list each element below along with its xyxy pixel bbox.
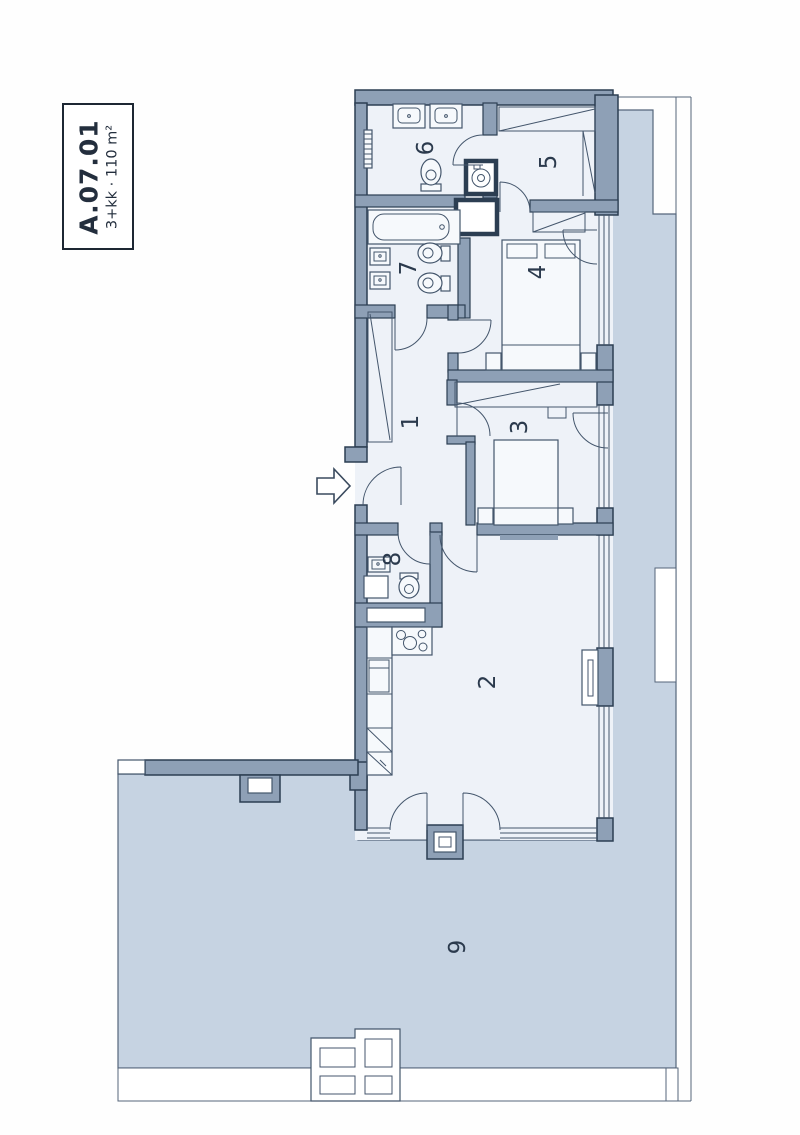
toilet-room8 [399, 573, 419, 598]
room-number-6: 6 [413, 141, 439, 156]
installation-shaft [456, 200, 497, 234]
wall-4-3 [448, 370, 613, 382]
floor-plan-page: A.07.01 3+kk · 110 m² [0, 0, 800, 1135]
chimney-unit [582, 650, 598, 705]
room-number-5: 5 [536, 155, 562, 170]
terrace-wall-column-core [248, 778, 272, 793]
bed-room3 [494, 440, 558, 525]
room-number-8: 8 [380, 552, 406, 567]
terrace-wall [145, 760, 358, 775]
nightstand-room4-left [486, 353, 501, 370]
wall-hall-south-a [355, 523, 398, 535]
radiator-living [500, 535, 558, 540]
entrance-arrow-icon [317, 469, 350, 503]
wall-7-hall-b [427, 305, 465, 318]
room-number-4: 4 [525, 265, 551, 280]
wall-8-south-niche [367, 608, 425, 622]
stove-icon [392, 627, 432, 655]
bed-room4 [502, 240, 580, 370]
nightstand-room3-right [558, 508, 573, 524]
wall-west-pilaster [345, 447, 367, 462]
kitchen-counter [367, 627, 392, 775]
wall-east-block-3 [597, 818, 613, 841]
closet-room8 [364, 576, 388, 598]
wall-3-west-lower [466, 442, 475, 525]
toilet-room6 [421, 159, 441, 191]
bathtub [368, 210, 460, 244]
wall-6-7 [355, 195, 465, 207]
sink-room7-2 [370, 272, 390, 289]
wall-5-4 [530, 200, 618, 212]
room-number-2: 2 [475, 675, 501, 690]
wall-hall-4-upper [448, 305, 458, 320]
wall-east-block-chimney [597, 648, 613, 706]
shaft-washer [466, 161, 496, 194]
nightstand-room4-right [581, 353, 596, 370]
wall-east-room5 [595, 95, 618, 215]
terrace-furniture [311, 1029, 400, 1101]
room-number-7: 7 [396, 261, 422, 276]
column-inner [434, 832, 456, 852]
terrace-edge-post [666, 1068, 678, 1101]
floor-plan-drawing: 1 2 3 4 5 6 7 8 9 [0, 0, 800, 1135]
wall-6-5-upper [483, 103, 497, 135]
bidet-room7 [418, 273, 450, 293]
radiator-icon [364, 130, 372, 168]
terrace-side-opening [655, 568, 676, 682]
wall-hall-4-lower [448, 353, 458, 372]
room-number-3: 3 [507, 420, 533, 435]
room-number-9: 9 [445, 940, 471, 955]
sink-room7-1 [370, 248, 390, 265]
room-number-1: 1 [398, 415, 424, 430]
terrace-wall-endcap [118, 760, 145, 774]
toilet-room7 [418, 243, 450, 263]
nightstand-room3-left [478, 508, 493, 524]
